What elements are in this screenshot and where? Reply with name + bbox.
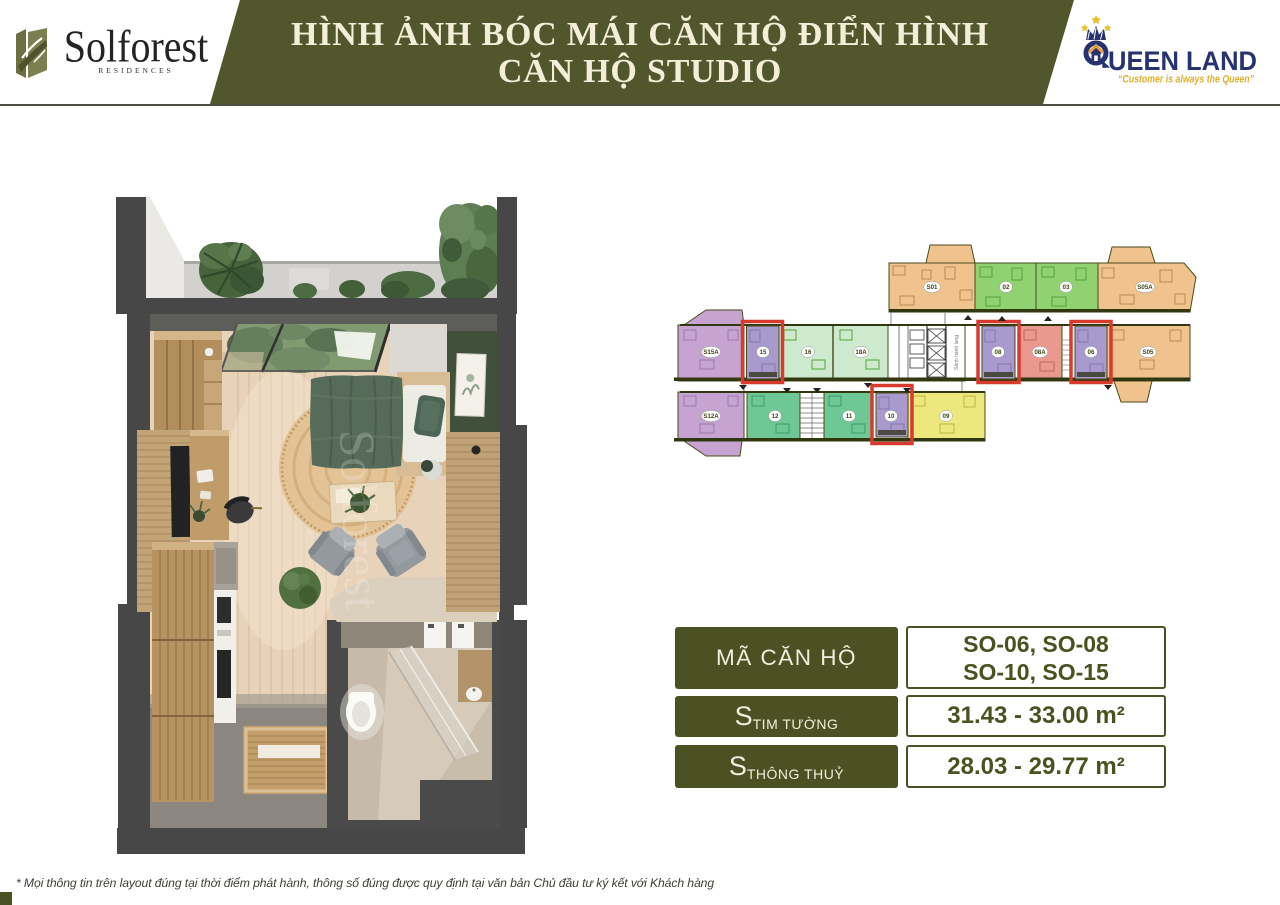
svg-text:S05: S05 — [1142, 349, 1154, 356]
svg-text:10: 10 — [888, 413, 895, 420]
svg-text:S15A: S15A — [703, 349, 719, 356]
svg-text:Sảnh hành lang: Sảnh hành lang — [954, 335, 960, 370]
svg-text:06: 06 — [1088, 349, 1095, 356]
svg-text:18A: 18A — [855, 349, 867, 356]
svg-text:08: 08 — [995, 349, 1002, 356]
svg-text:Solforest: Solforest — [329, 428, 391, 610]
svg-text:S05A: S05A — [1137, 284, 1153, 291]
svg-text:16: 16 — [805, 349, 812, 356]
svg-text:02: 02 — [1003, 284, 1010, 291]
svg-text:08A: 08A — [1034, 349, 1046, 356]
svg-text:09: 09 — [943, 413, 950, 420]
svg-text:S12A: S12A — [703, 413, 719, 420]
svg-text:“Customer is always the Queen”: “Customer is always the Queen” — [1118, 74, 1254, 86]
svg-text:11: 11 — [846, 413, 853, 420]
svg-text:S01: S01 — [926, 284, 938, 291]
svg-text:UEEN LAND: UEEN LAND — [1108, 46, 1257, 76]
svg-text:15: 15 — [760, 349, 767, 356]
svg-text:03: 03 — [1063, 284, 1070, 291]
svg-text:12: 12 — [772, 413, 779, 420]
